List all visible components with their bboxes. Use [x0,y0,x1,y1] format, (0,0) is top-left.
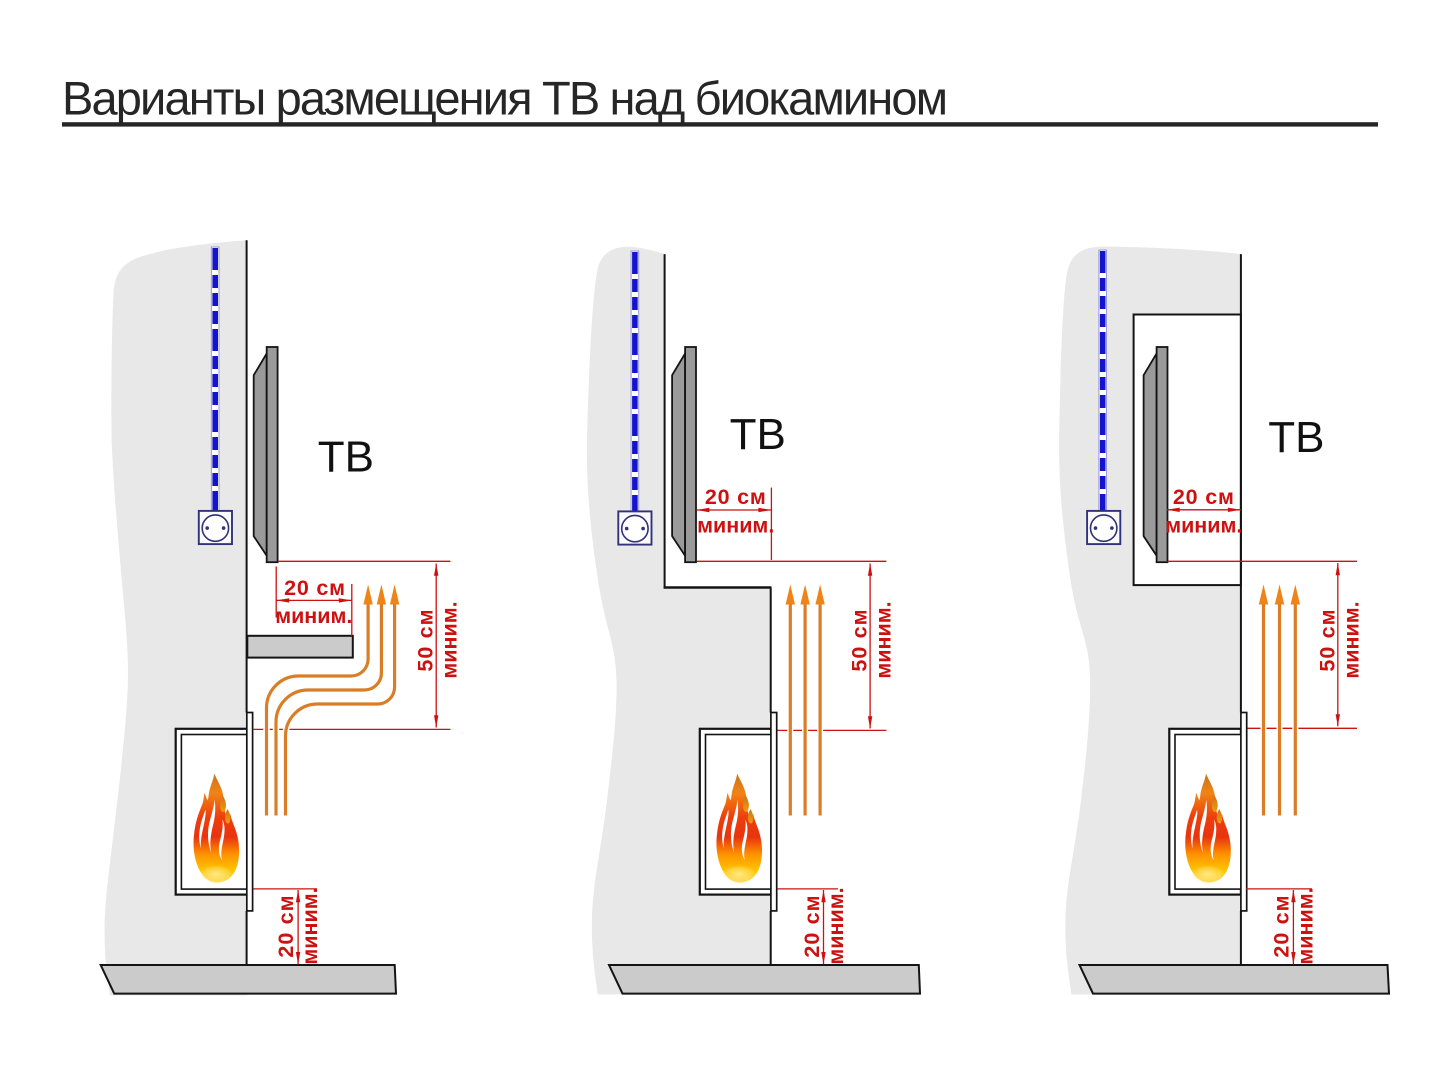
svg-text:ТВ: ТВ [318,433,374,482]
svg-text:ТВ: ТВ [1268,413,1324,462]
svg-text:20 смминим.: 20 смминим. [274,887,322,964]
svg-text:миним.: миним. [697,514,774,538]
svg-text:миним.: миним. [275,604,352,628]
svg-text:ТВ: ТВ [730,410,786,459]
svg-text:50 смминим.: 50 смминим. [1315,601,1363,678]
svg-text:20 см: 20 см [284,576,346,600]
svg-text:миним.: миним. [1165,514,1242,538]
svg-text:20 см: 20 см [1173,485,1235,509]
svg-text:20 смминим.: 20 смминим. [800,887,848,964]
svg-text:50 смминим.: 50 смминим. [414,601,462,678]
svg-text:20 см: 20 см [705,485,767,509]
svg-text:20 смминим.: 20 смминим. [1269,887,1317,964]
svg-text:50 смминим.: 50 смминим. [848,601,896,678]
svg-text:Варианты размещения ТВ над био: Варианты размещения ТВ над биокамином [62,72,948,125]
